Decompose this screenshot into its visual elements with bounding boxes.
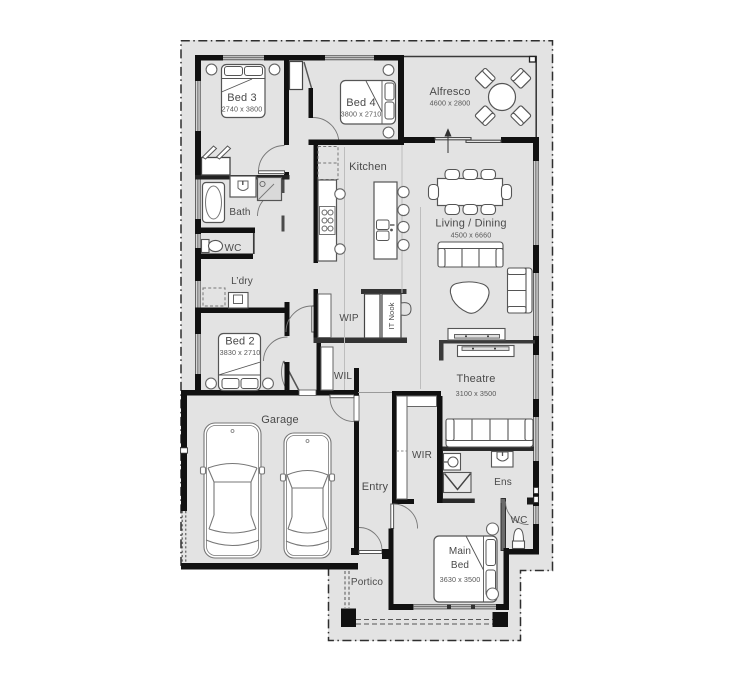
svg-text:Bed 3: Bed 3 — [227, 92, 257, 104]
svg-text:Bed: Bed — [451, 560, 469, 571]
svg-text:L’dry: L’dry — [231, 276, 253, 287]
svg-text:3100 x 3500: 3100 x 3500 — [456, 389, 497, 398]
svg-text:3630 x 3500: 3630 x 3500 — [440, 575, 481, 584]
svg-text:4500 x 6660: 4500 x 6660 — [451, 231, 492, 240]
svg-text:WC: WC — [511, 515, 528, 526]
svg-text:Garage: Garage — [261, 414, 299, 426]
svg-text:IT Nook: IT Nook — [387, 302, 396, 329]
svg-text:Kitchen: Kitchen — [349, 161, 387, 173]
svg-text:WC: WC — [225, 243, 242, 254]
svg-text:WIL: WIL — [334, 371, 353, 382]
svg-text:Bed 2: Bed 2 — [225, 336, 255, 348]
svg-text:Main: Main — [449, 546, 471, 557]
svg-text:4600 x 2800: 4600 x 2800 — [430, 99, 471, 108]
svg-text:WIR: WIR — [412, 450, 432, 461]
svg-text:Ens: Ens — [494, 477, 512, 488]
svg-text:Portico: Portico — [351, 577, 383, 588]
svg-text:Living / Dining: Living / Dining — [435, 218, 506, 230]
svg-text:Entry: Entry — [362, 481, 389, 493]
svg-text:Bed 4: Bed 4 — [346, 97, 376, 109]
svg-text:Theatre: Theatre — [457, 373, 496, 385]
svg-text:3830 x 2710: 3830 x 2710 — [220, 348, 261, 357]
svg-text:2740 x 3800: 2740 x 3800 — [222, 105, 263, 114]
svg-text:WIP: WIP — [339, 313, 359, 324]
svg-text:Alfresco: Alfresco — [430, 86, 471, 98]
svg-text:Bath: Bath — [229, 207, 250, 218]
svg-text:3800 x 2710: 3800 x 2710 — [341, 110, 382, 119]
